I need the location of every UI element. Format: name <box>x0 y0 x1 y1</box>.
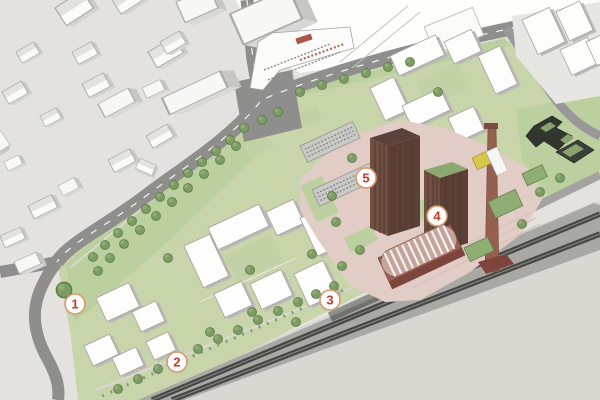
masterplan-stage: 1 2 3 4 5 <box>0 0 600 400</box>
tree <box>536 188 545 197</box>
tree <box>356 246 365 255</box>
tree <box>114 229 123 238</box>
tree <box>232 142 241 151</box>
tree <box>312 290 321 299</box>
tree <box>296 88 305 97</box>
tree <box>168 198 177 207</box>
tree <box>152 212 161 221</box>
tree <box>198 158 207 167</box>
marker-5[interactable]: 5 <box>356 168 376 188</box>
tree <box>106 254 115 263</box>
tree <box>114 385 123 394</box>
tree <box>246 266 255 275</box>
marker-label: 2 <box>173 354 180 369</box>
tree <box>216 156 225 165</box>
tree <box>234 326 243 335</box>
tree <box>170 181 179 190</box>
tree <box>194 345 203 354</box>
tree <box>274 108 283 117</box>
tree <box>200 170 209 179</box>
tree <box>248 308 257 317</box>
marker-label: 5 <box>362 170 369 185</box>
tree <box>156 193 165 202</box>
marker-3[interactable]: 3 <box>320 290 340 310</box>
tree <box>136 226 145 235</box>
tree <box>434 88 443 97</box>
tree <box>292 318 301 327</box>
chimney-cap <box>484 123 498 129</box>
tree <box>556 174 565 183</box>
tree <box>340 75 349 84</box>
tree <box>142 205 151 214</box>
tree <box>318 81 327 90</box>
tree <box>328 192 337 201</box>
tree <box>258 116 267 125</box>
tree <box>332 218 341 227</box>
marker-label: 1 <box>71 296 78 311</box>
marker-2[interactable]: 2 <box>167 352 187 372</box>
marker-4[interactable]: 4 <box>427 206 447 226</box>
brick-tower-1 <box>370 128 420 236</box>
tree <box>101 241 110 250</box>
tree <box>294 298 303 307</box>
tree <box>338 262 347 271</box>
tree <box>254 316 263 325</box>
tree <box>330 282 339 291</box>
tree <box>384 63 393 72</box>
tree <box>89 253 98 262</box>
marker-label: 4 <box>433 208 441 223</box>
tree <box>348 154 357 163</box>
marker-label: 3 <box>326 292 333 307</box>
tree <box>94 267 103 276</box>
tree <box>518 220 527 229</box>
tree <box>274 307 283 316</box>
tree <box>164 254 173 263</box>
tree <box>240 124 249 133</box>
tree <box>184 184 193 193</box>
tree <box>308 250 317 259</box>
tree <box>406 58 415 67</box>
tree <box>362 69 371 78</box>
tree <box>154 365 163 374</box>
tree <box>206 328 215 337</box>
masterplan-rendering: 1 2 3 4 5 <box>0 0 600 400</box>
tower-face <box>388 136 420 236</box>
tree <box>212 147 221 156</box>
tower-face <box>370 138 388 236</box>
tree <box>128 217 137 226</box>
tree <box>120 240 129 249</box>
tree <box>214 335 223 344</box>
tree <box>184 169 193 178</box>
marker-1[interactable]: 1 <box>65 294 85 314</box>
tree <box>134 375 143 384</box>
